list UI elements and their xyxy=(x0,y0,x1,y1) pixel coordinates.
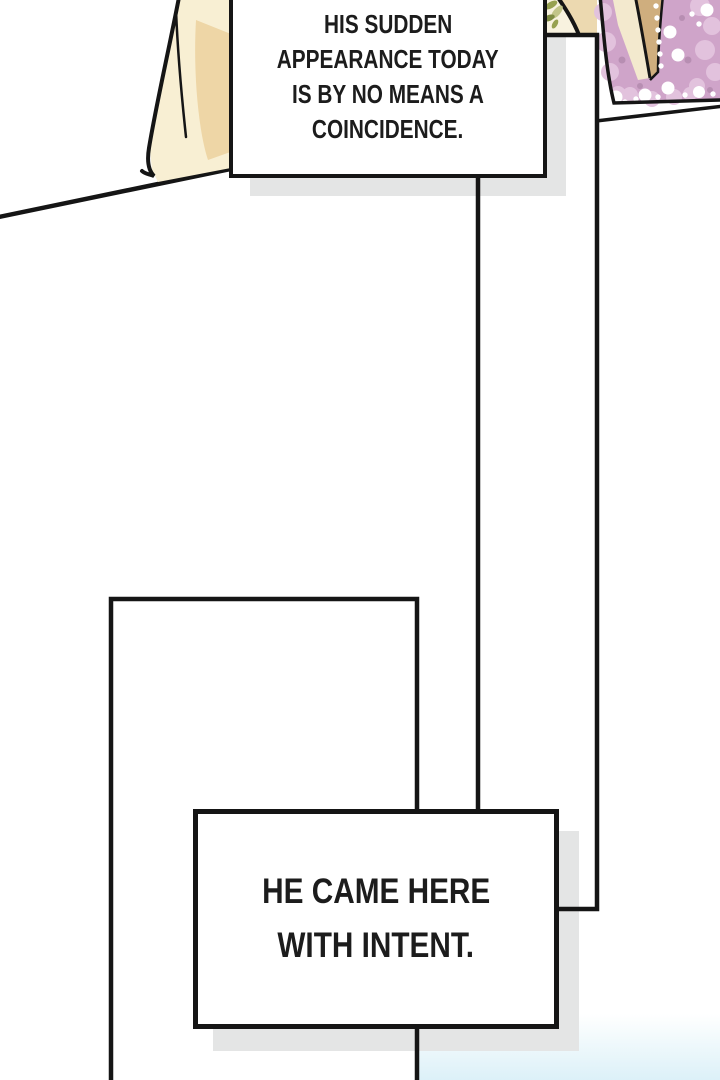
scene-floor-edge-right xyxy=(596,106,720,121)
speech-line: IS BY NO MEANS A xyxy=(292,77,484,112)
speech-line: HIS SUDDEN xyxy=(324,7,452,42)
speech-line: COINCIDENCE. xyxy=(312,112,463,147)
comic-page: HIS SUDDEN APPEARANCE TODAY IS BY NO MEA… xyxy=(0,0,720,1080)
bottom-speech-box: HE CAME HERE WITH INTENT. xyxy=(193,809,559,1029)
lace-blanket-corner xyxy=(594,0,720,108)
speech-line: WITH INTENT. xyxy=(278,919,475,973)
scene-floor-edge-left xyxy=(0,167,240,218)
speech-line: HE CAME HERE xyxy=(262,865,490,919)
top-speech-box: HIS SUDDEN APPEARANCE TODAY IS BY NO MEA… xyxy=(229,0,547,178)
speech-line: APPEARANCE TODAY xyxy=(277,42,499,77)
